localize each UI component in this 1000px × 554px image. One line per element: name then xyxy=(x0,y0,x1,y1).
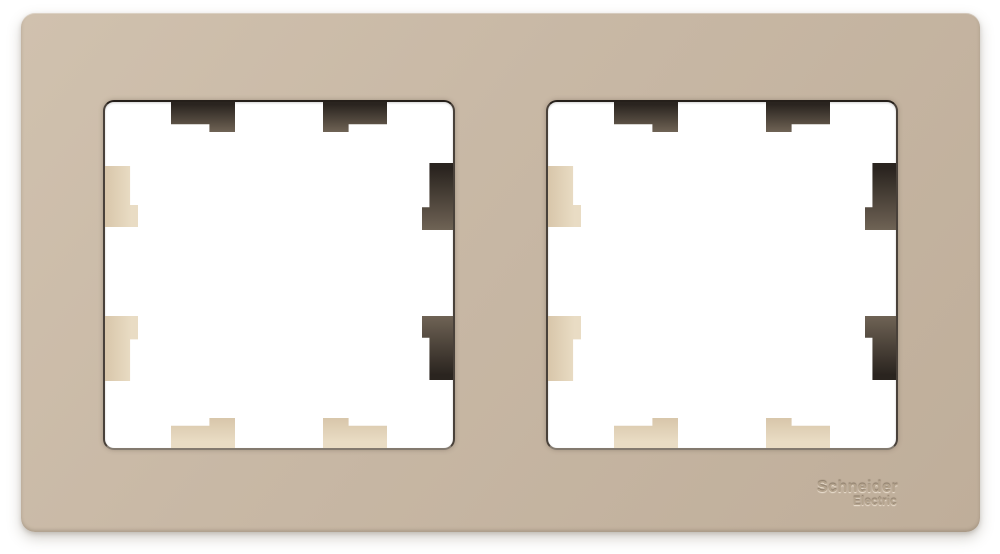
wall-frame-plate: Schneider Electric xyxy=(21,13,980,532)
retention-clip-top-second xyxy=(323,102,387,132)
retention-clip-left-first xyxy=(548,166,581,227)
retention-clip-right-second xyxy=(865,316,896,380)
brand-logo: Schneider Electric xyxy=(817,480,898,509)
module-opening-right xyxy=(546,100,898,450)
retention-clip-left-second xyxy=(548,316,581,381)
brand-name-text: Schneider xyxy=(817,480,898,496)
retention-clip-right-first xyxy=(865,163,896,230)
module-opening-left xyxy=(103,100,455,450)
retention-clip-right-first xyxy=(422,163,453,230)
retention-clip-top-first xyxy=(614,102,678,132)
retention-clip-bottom-first xyxy=(171,418,235,448)
retention-clip-bottom-second xyxy=(323,418,387,448)
brand-subname-text: Electric xyxy=(817,497,898,509)
retention-clip-right-second xyxy=(422,316,453,380)
retention-clip-top-second xyxy=(766,102,830,132)
product-photo: Schneider Electric xyxy=(0,0,1000,554)
retention-clip-bottom-second xyxy=(766,418,830,448)
retention-clip-top-first xyxy=(171,102,235,132)
retention-clip-left-second xyxy=(105,316,138,381)
retention-clip-bottom-first xyxy=(614,418,678,448)
retention-clip-left-first xyxy=(105,166,138,227)
